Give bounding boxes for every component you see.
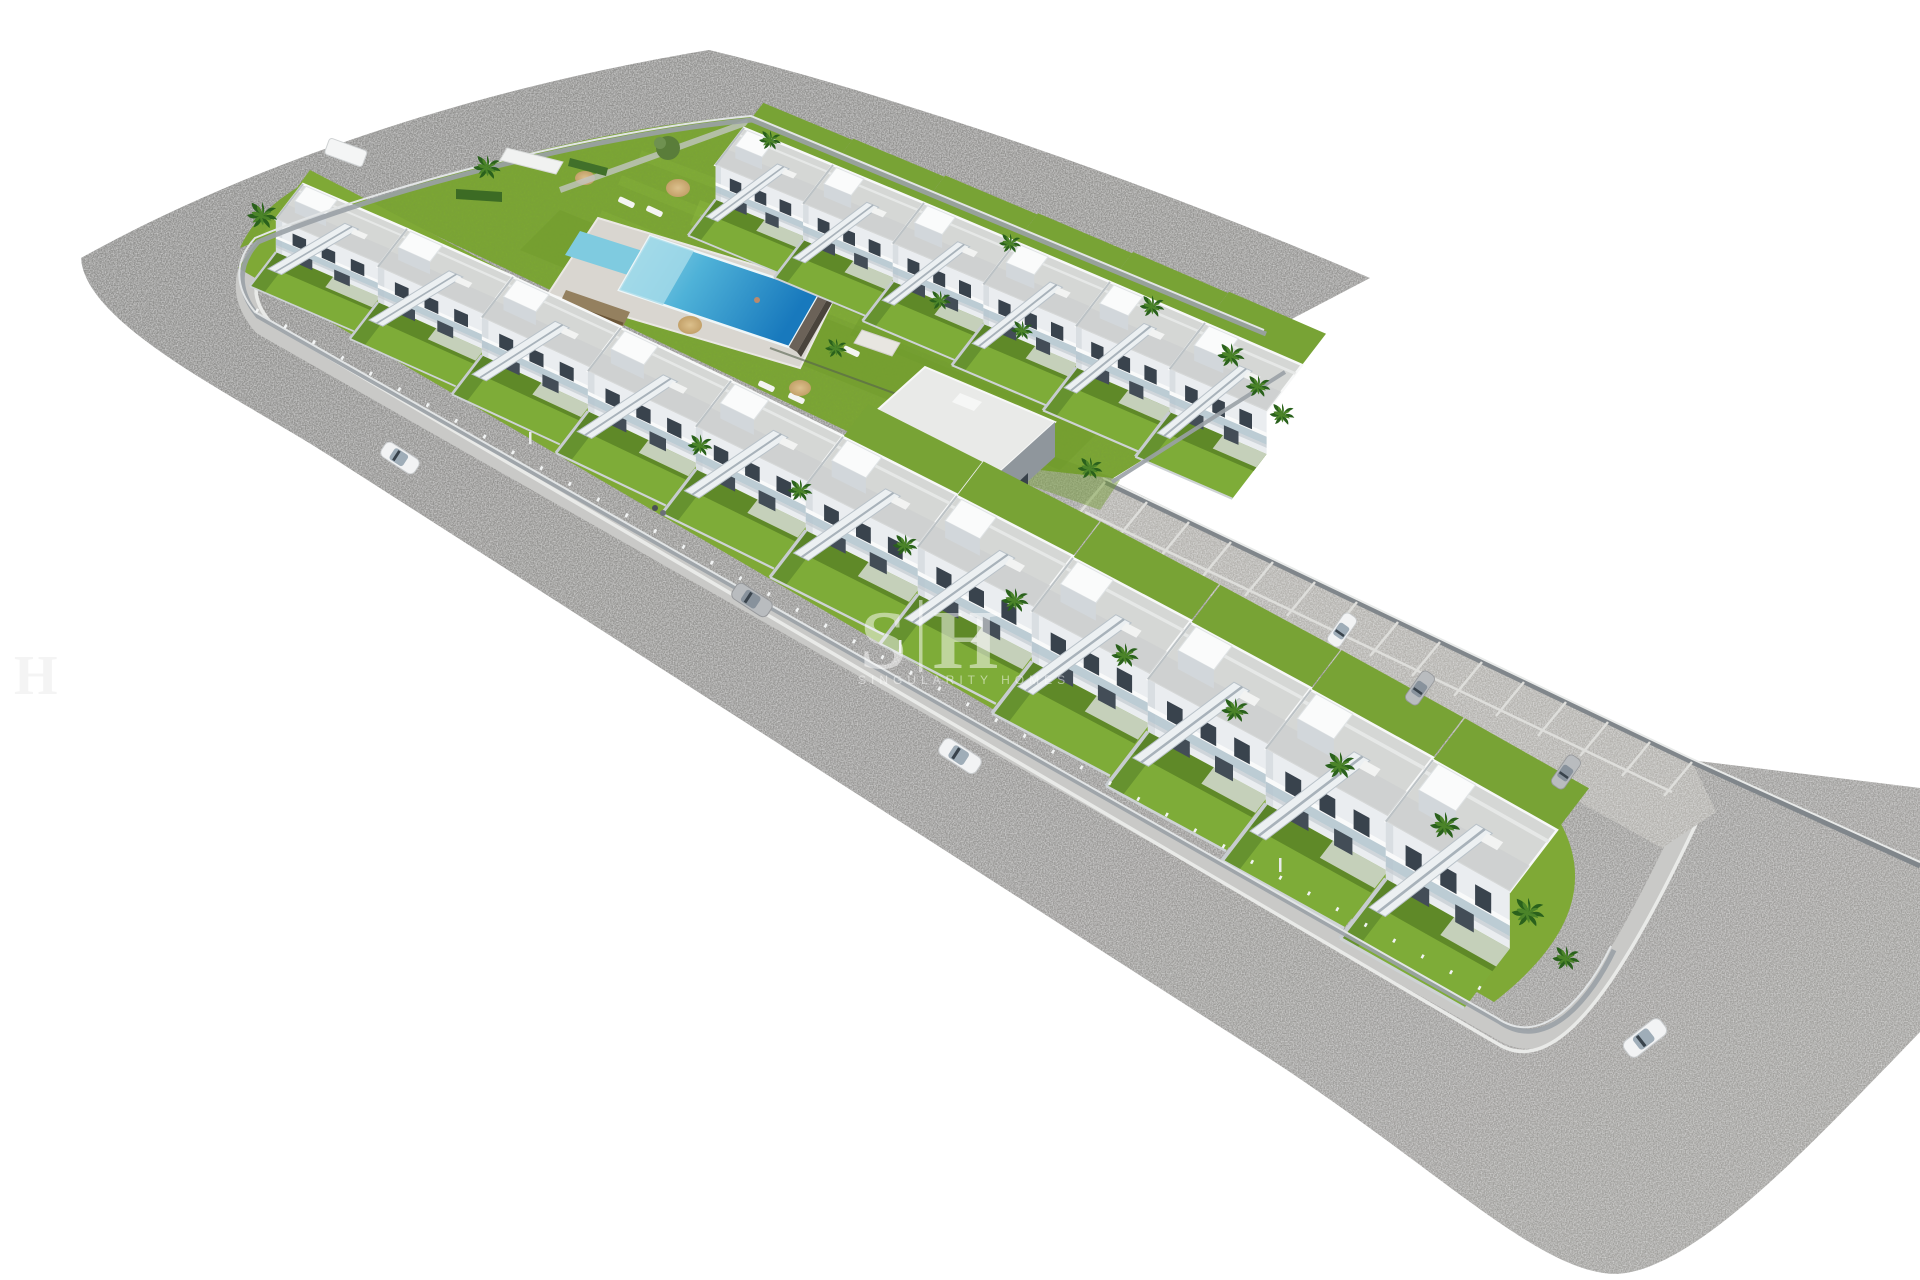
svg-text:SINGULARITY HOMES: SINGULARITY HOMES	[858, 673, 1070, 687]
svg-text:H: H	[14, 645, 58, 707]
